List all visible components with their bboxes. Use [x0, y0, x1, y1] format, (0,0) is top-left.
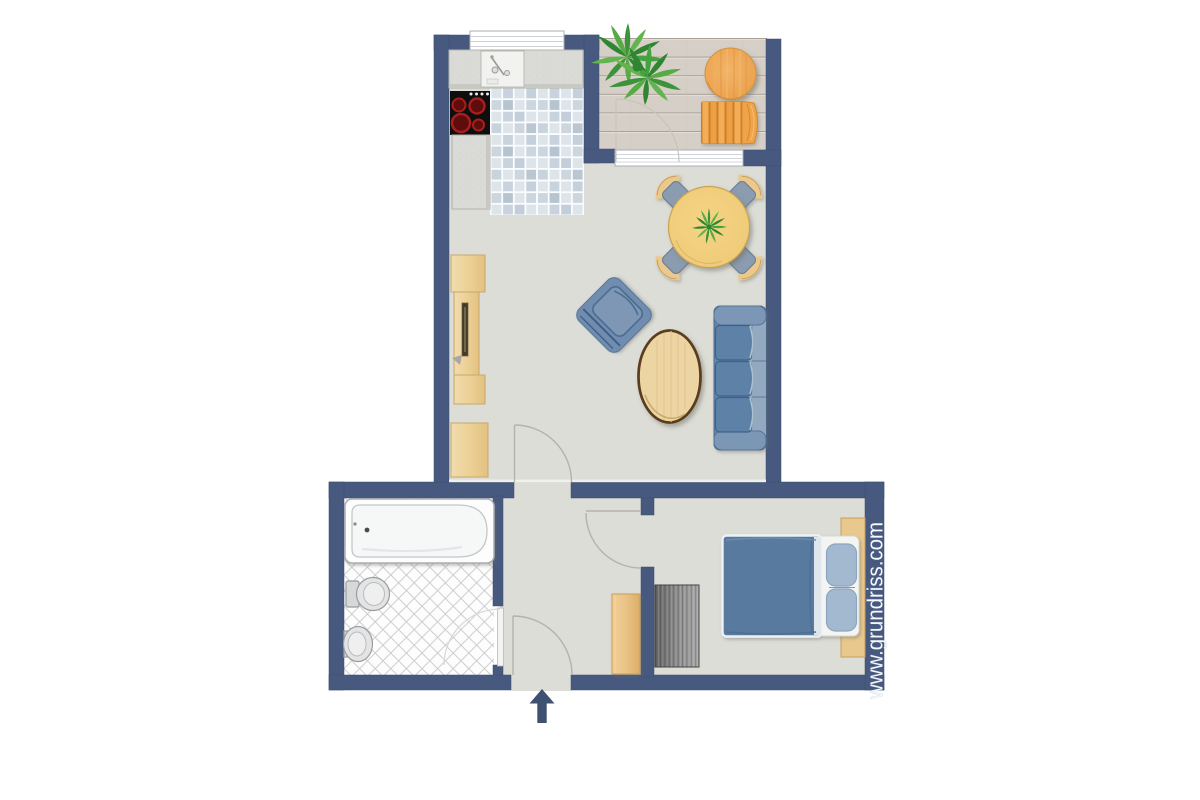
- svg-text:www.grundriss.com: www.grundriss.com: [863, 522, 888, 700]
